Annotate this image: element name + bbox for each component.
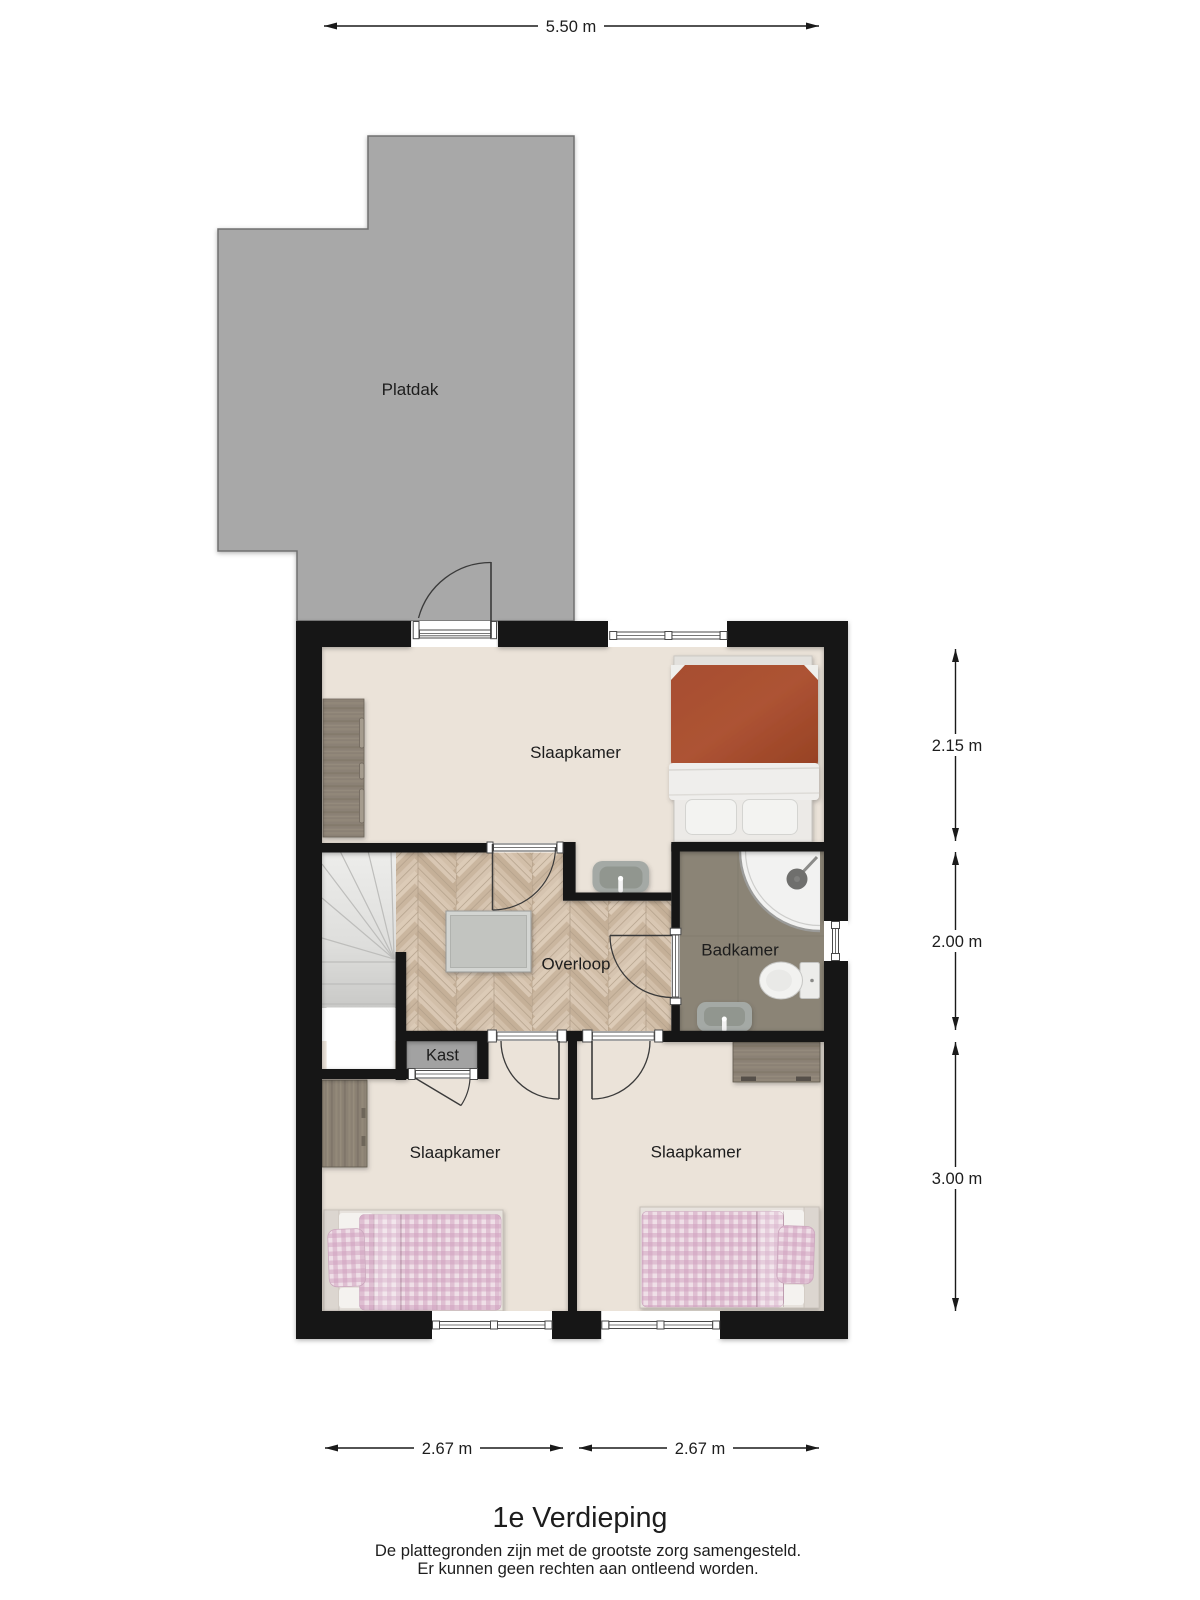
svg-text:De plattegronden zijn met de g: De plattegronden zijn met de grootste zo…	[375, 1541, 801, 1560]
svg-text:2.15 m: 2.15 m	[932, 737, 982, 755]
svg-text:Slaapkamer: Slaapkamer	[410, 1143, 501, 1162]
svg-text:3.00 m: 3.00 m	[932, 1170, 982, 1188]
svg-text:2.00 m: 2.00 m	[932, 933, 982, 951]
svg-text:Overloop: Overloop	[542, 955, 611, 974]
svg-text:1e Verdieping: 1e Verdieping	[493, 1502, 668, 1534]
svg-text:Platdak: Platdak	[382, 380, 439, 399]
svg-text:5.50 m: 5.50 m	[546, 18, 596, 36]
svg-text:Badkamer: Badkamer	[701, 941, 779, 960]
svg-text:2.67 m: 2.67 m	[422, 1440, 472, 1458]
svg-text:Kast: Kast	[426, 1047, 459, 1065]
svg-text:2.67 m: 2.67 m	[675, 1440, 725, 1458]
svg-text:Er kunnen geen rechten aan ont: Er kunnen geen rechten aan ontleend word…	[417, 1559, 758, 1578]
svg-text:Slaapkamer: Slaapkamer	[530, 743, 621, 762]
svg-text:Slaapkamer: Slaapkamer	[651, 1143, 742, 1162]
